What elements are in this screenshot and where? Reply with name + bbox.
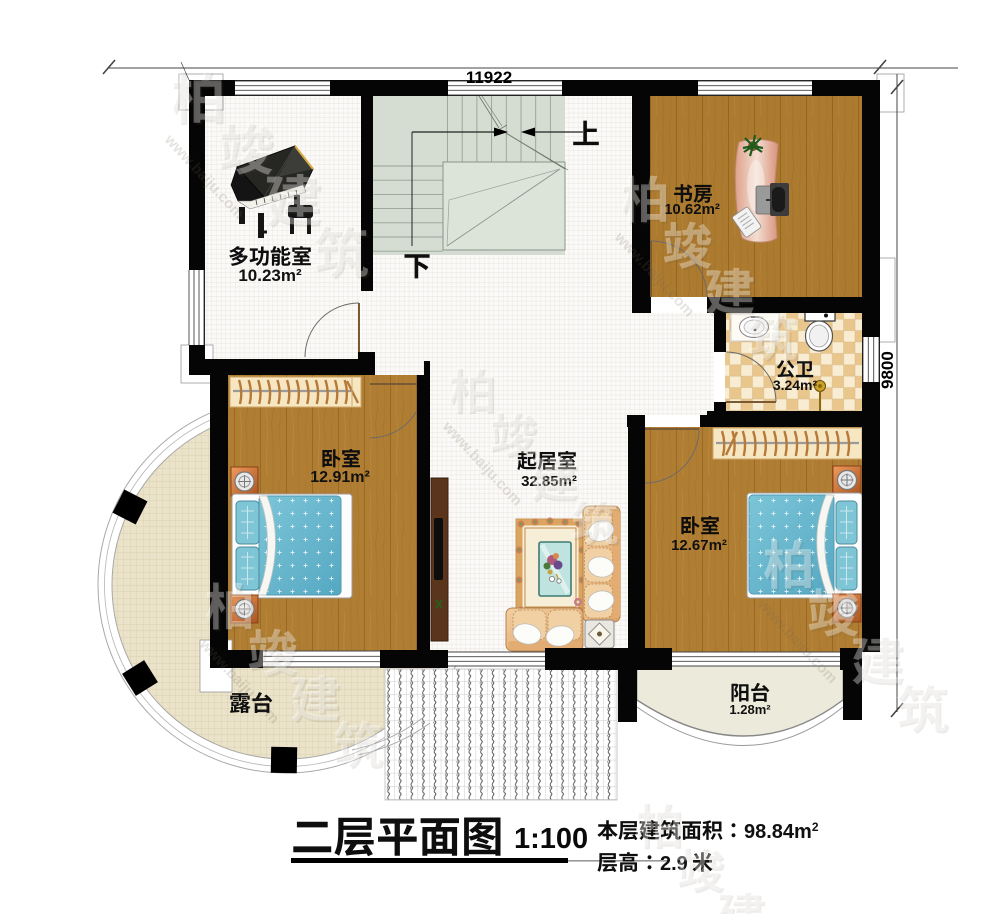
svg-text:11922: 11922 [466,68,512,87]
svg-text:1.28m²: 1.28m² [729,702,771,717]
svg-text:1:100: 1:100 [514,823,588,855]
svg-text:98.84m2: 98.84m2 [744,820,819,843]
svg-text:9800: 9800 [878,351,897,389]
svg-text:10.62m²: 10.62m² [664,201,720,218]
svg-text:12.67m²: 12.67m² [671,537,727,554]
svg-text:10.23m²: 10.23m² [238,266,302,285]
svg-text:12.91m²: 12.91m² [310,469,370,486]
svg-text:3.24m²: 3.24m² [773,377,818,393]
